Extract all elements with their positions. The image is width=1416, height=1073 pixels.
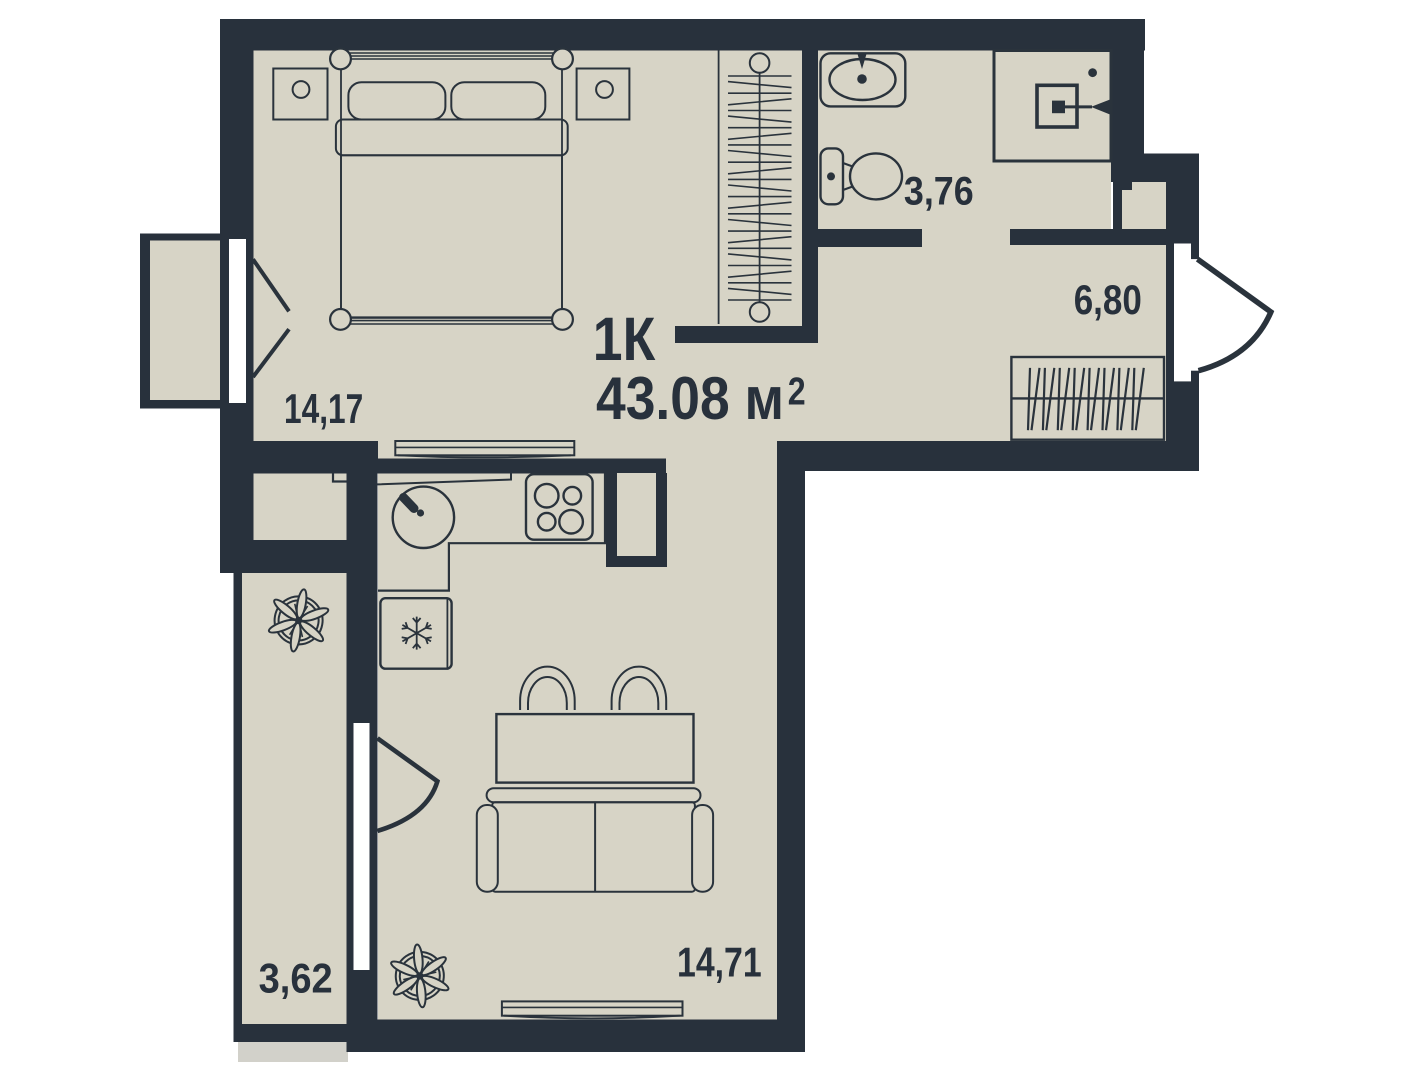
svg-text:14,71: 14,71: [677, 939, 762, 986]
svg-text:43.08 м: 43.08 м: [596, 365, 784, 432]
svg-text:1К: 1К: [593, 305, 656, 373]
svg-text:2: 2: [788, 370, 806, 413]
svg-text:3,62: 3,62: [259, 954, 333, 1001]
svg-text:6,80: 6,80: [1074, 276, 1142, 323]
svg-text:3,76: 3,76: [904, 170, 974, 214]
svg-text:14,17: 14,17: [284, 385, 363, 432]
